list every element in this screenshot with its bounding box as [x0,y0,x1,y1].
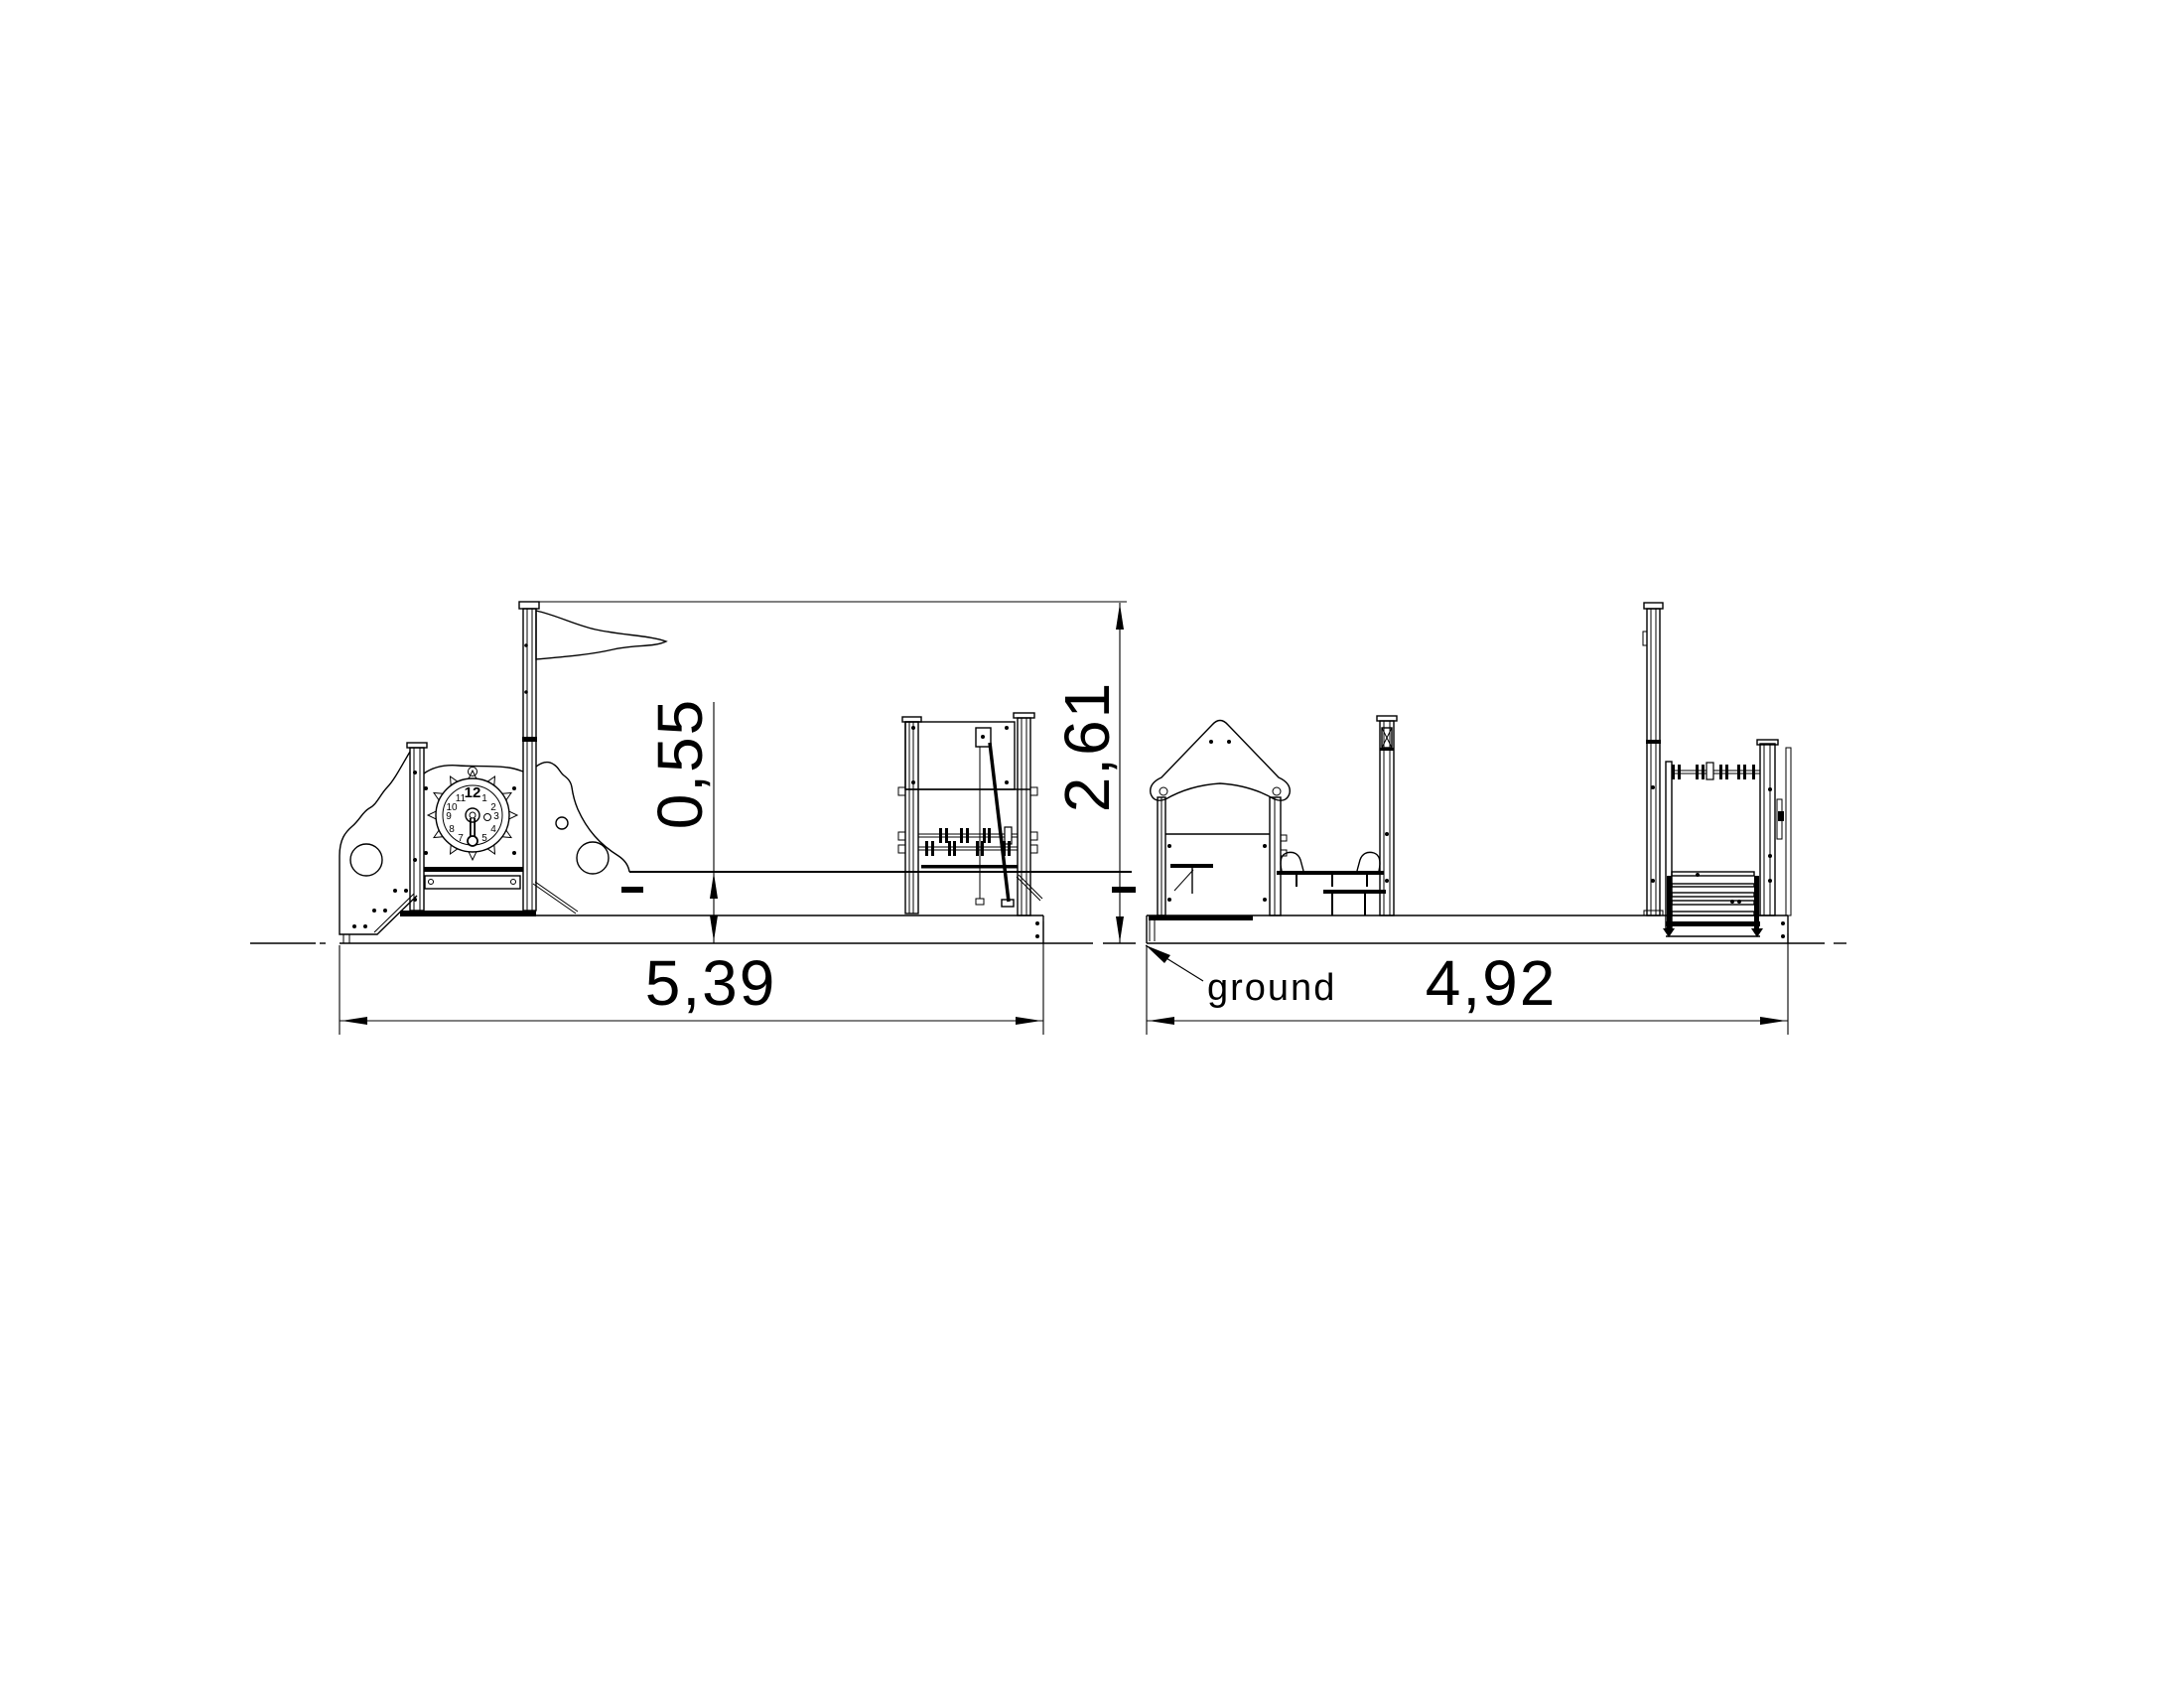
right-width-label: 4,92 [1426,947,1558,1019]
left-view: 12 1 2 3 4 5 6 7 8 9 10 11 [340,602,1136,943]
roof [1151,721,1291,801]
clock-number-1: 1 [481,793,487,804]
clock-number-11: 11 [456,793,467,804]
seats-and-table [1277,852,1386,915]
playhouse [1151,721,1291,916]
clock-number-4: 4 [490,824,496,835]
dimension-deck-height: 0,55 [644,698,718,943]
top-panel [905,722,1015,789]
right-view [1147,603,1791,943]
right-platform [1147,915,1788,943]
lower-board [425,876,578,914]
right-wing-panel [536,763,629,874]
ground-callout: ground [1146,945,1336,1009]
climbing-unit [898,713,1042,915]
deck-height-label: 0,55 [644,698,716,830]
deck-line [621,872,1136,893]
left-post [407,743,427,911]
left-width-label: 5,39 [645,947,777,1019]
steps [1663,872,1763,937]
left-platform [343,911,1043,943]
playground-elevation-drawing: 12 1 2 3 4 5 6 7 8 9 10 11 [0,0,2184,1688]
clock-number-3: 3 [493,811,499,822]
clock-panel: 12 1 2 3 4 5 6 7 8 9 10 11 [424,766,523,872]
clock-number-5: 5 [481,833,487,844]
slide-pole [976,728,1014,907]
clock-number-7: 7 [458,833,464,844]
clock-icon: 12 1 2 3 4 5 6 7 8 9 10 11 [428,768,517,861]
stairs-unit [1663,740,1791,937]
clock-number-8: 8 [449,824,455,835]
left-wing-panel [340,752,417,934]
clock-number-12: 12 [465,784,481,801]
total-height-label: 2,61 [1051,681,1123,813]
dimension-left-width: 5,39 [340,921,1043,1035]
centre-post [1377,716,1397,915]
pennant-flag-icon [536,611,666,659]
rear-mast [1643,603,1663,915]
ground-label: ground [1207,967,1336,1009]
technical-drawing-page: 12 1 2 3 4 5 6 7 8 9 10 11 [0,0,2184,1688]
shelf [1170,864,1213,868]
